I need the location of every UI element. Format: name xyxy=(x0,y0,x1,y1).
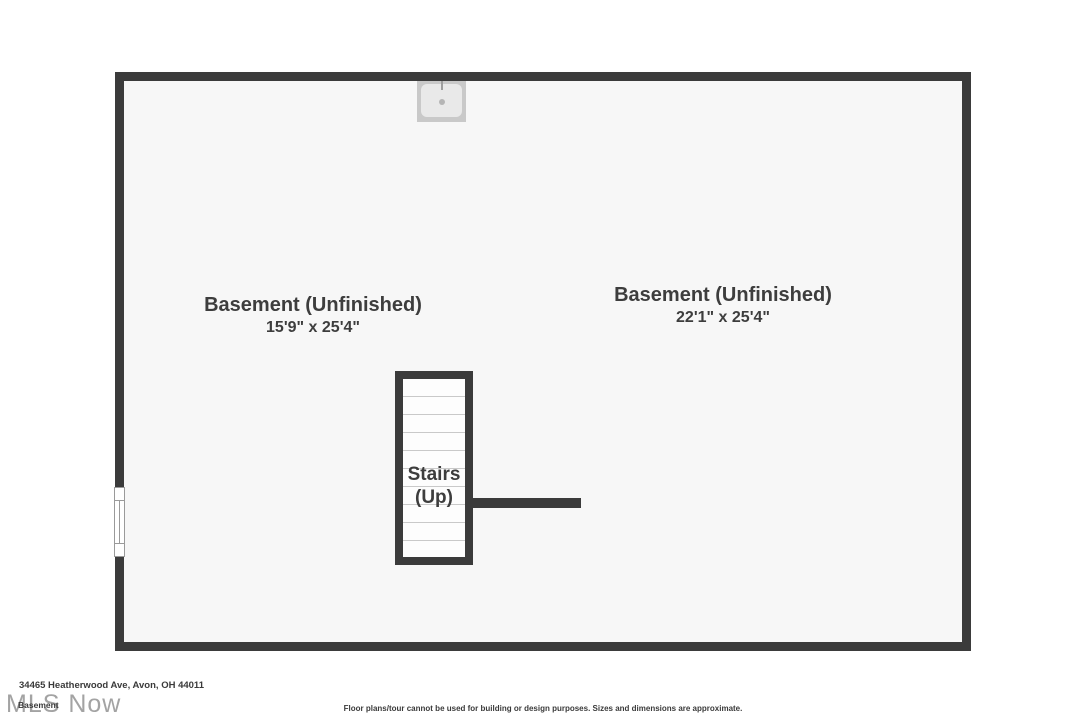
disclaimer-text: Floor plans/tour cannot be used for buil… xyxy=(0,704,1086,713)
floorplan-page: Basement (Unfinished) 15'9" x 25'4" Base… xyxy=(0,0,1086,724)
stairs-icon: Stairs (Up) xyxy=(395,371,473,565)
window-sash-bottom xyxy=(115,543,124,544)
room-dimensions: 22'1" x 25'4" xyxy=(614,308,832,328)
room-name: Basement (Unfinished) xyxy=(614,283,832,307)
stairs-label-line1: Stairs xyxy=(408,463,461,486)
basement-floorplan-outline xyxy=(115,72,971,651)
sink-faucet xyxy=(441,81,443,90)
window-icon xyxy=(114,487,125,557)
room-label-basement-left: Basement (Unfinished) 15'9" x 25'4" xyxy=(204,293,422,338)
stairs-label: Stairs (Up) xyxy=(408,463,461,509)
interior-wall-stub xyxy=(465,498,581,508)
window-pane-line xyxy=(119,501,120,543)
room-name: Basement (Unfinished) xyxy=(204,293,422,317)
sink-icon xyxy=(417,81,466,122)
stairs-label-line2: (Up) xyxy=(408,486,461,509)
room-label-basement-right: Basement (Unfinished) 22'1" x 25'4" xyxy=(614,283,832,328)
sink-drain xyxy=(439,99,445,105)
room-dimensions: 15'9" x 25'4" xyxy=(204,318,422,338)
